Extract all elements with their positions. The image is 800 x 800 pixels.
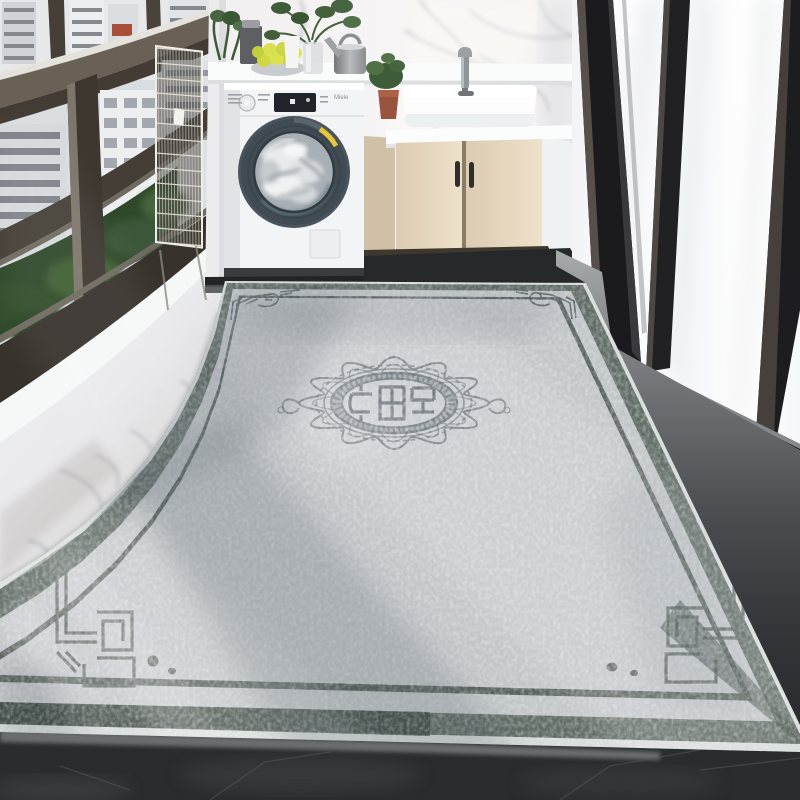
svg-text:Miele: Miele (334, 95, 349, 101)
